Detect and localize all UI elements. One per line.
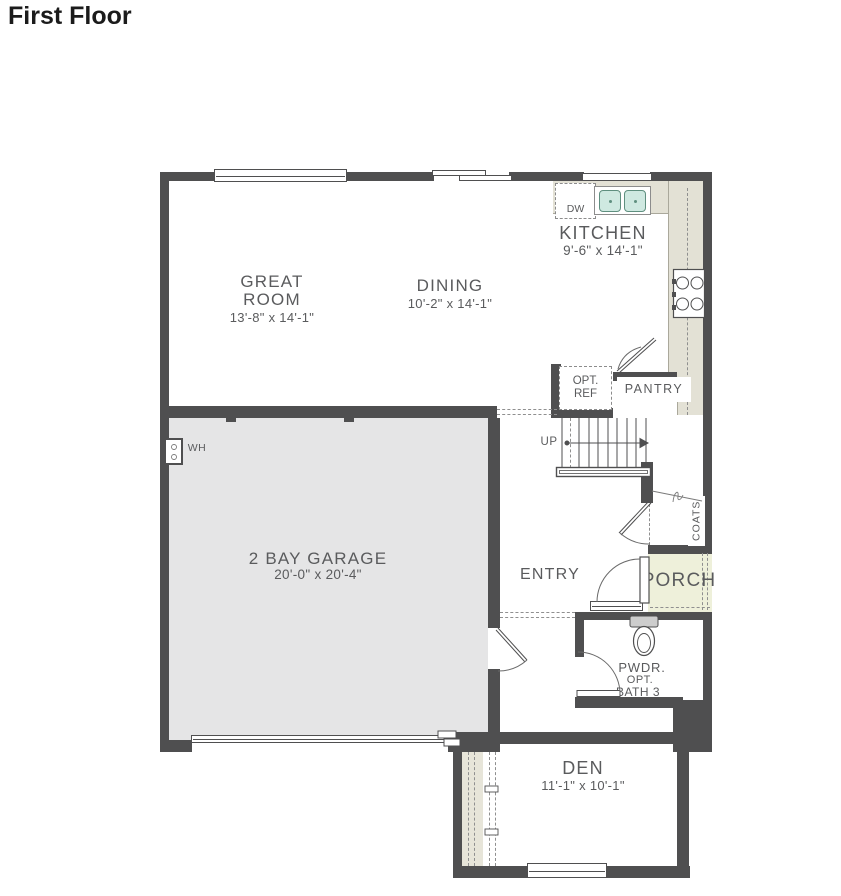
wall	[703, 612, 712, 708]
kitchen-sink	[594, 186, 651, 215]
wall	[509, 172, 584, 181]
powder-room-label: PWDR.	[618, 660, 665, 675]
wall	[575, 612, 584, 657]
sliding-door-panel	[459, 175, 512, 181]
porch-label: PORCH	[642, 570, 717, 592]
dashed-line	[500, 612, 575, 613]
pantry-door-swing	[618, 347, 641, 369]
coats-opening-dashed	[649, 504, 650, 545]
wall	[160, 740, 192, 752]
wall	[160, 406, 497, 418]
dashed-line	[500, 617, 575, 618]
front-door-threshold	[590, 601, 643, 611]
strip-jog	[485, 829, 498, 835]
dishwasher-label: DW	[567, 203, 585, 216]
wall	[453, 866, 528, 878]
garage-label: 2 BAY GARAGE	[249, 549, 388, 569]
kitchen-counter-right	[668, 181, 704, 378]
bath-door-leaf	[577, 691, 620, 697]
dishwasher-box: DW	[555, 183, 596, 219]
entry-label: ENTRY	[520, 566, 580, 584]
optional-refrigerator-box: OPT. REF	[559, 366, 612, 410]
kitchen-dimensions: 9'-6" x 14'-1"	[563, 243, 643, 258]
dashed-line	[497, 414, 557, 415]
great-room-label: ROOM	[243, 290, 301, 310]
sink-basin	[599, 190, 621, 212]
dining-label: DINING	[417, 276, 484, 296]
wall	[346, 172, 434, 181]
stair-handrail-inner	[560, 471, 648, 474]
front-door-swing	[597, 559, 640, 602]
garage-door-leaf	[498, 628, 527, 660]
pantry-door-leaf	[617, 338, 654, 371]
stair-dashed-line	[570, 418, 571, 468]
garage-dimensions: 20'-0" x 20'-4"	[274, 567, 362, 582]
water-heater-box	[164, 438, 183, 465]
water-heater-label: WH	[188, 442, 207, 454]
bath-door-swing	[578, 652, 620, 694]
powder-room-label: BATH 3	[616, 685, 660, 699]
wall	[448, 732, 500, 752]
wall	[453, 752, 462, 878]
coats-door-leaf	[621, 503, 651, 535]
wall	[488, 418, 500, 628]
coats-door-swing	[620, 533, 650, 544]
dashed-line	[497, 409, 557, 410]
garage-door-panel	[191, 735, 448, 743]
stairs-up-label: UP	[541, 436, 558, 448]
dining-dimensions: 10'-2" x 14'-1"	[408, 296, 492, 311]
great-room-dimensions: 13'-8" x 14'-1"	[230, 310, 314, 325]
dashed-line	[474, 752, 475, 866]
kitchen-label: KITCHEN	[559, 223, 646, 244]
dashed-line	[468, 752, 469, 866]
pantry-label: PANTRY	[625, 382, 684, 396]
coats-closet-label: COATS	[688, 496, 705, 546]
strip-jog	[485, 786, 498, 792]
up-arrow-head	[640, 439, 648, 448]
garage-door-leaf	[496, 630, 525, 662]
up-arrow-dot	[565, 441, 569, 445]
wall	[575, 612, 712, 620]
wall	[677, 744, 689, 878]
pantry-door-leaf	[619, 340, 656, 373]
page-title: First Floor	[8, 2, 132, 31]
floor-plan-page: First Floor	[0, 0, 841, 896]
great-room-label: GREAT	[240, 272, 303, 292]
garage-door-swing	[498, 660, 527, 671]
sink-basin	[624, 190, 646, 212]
wall	[500, 732, 689, 744]
stair-handrail	[557, 468, 651, 477]
dashed-line	[495, 752, 496, 866]
great-room-window	[214, 169, 347, 182]
porch-edge-dashed	[650, 607, 710, 608]
opt-ref-label-1: OPT.	[573, 375, 599, 388]
coats-door-leaf	[619, 501, 649, 533]
opt-ref-label-2: REF	[574, 388, 597, 401]
toilet-bowl-inner	[638, 634, 651, 653]
toilet-bowl	[634, 627, 655, 656]
den-window	[527, 863, 607, 878]
den-side-strip	[462, 752, 483, 866]
dashed-line	[489, 752, 490, 866]
den-dimensions: 11'-1" x 10'-1"	[541, 778, 625, 793]
coats-label: COATS	[691, 501, 703, 541]
kitchen-window	[583, 173, 651, 181]
coats-rod-hook	[673, 492, 683, 502]
pantry-label-box: PANTRY	[617, 377, 691, 402]
den-label: DEN	[562, 758, 604, 779]
stair-newel-wall	[641, 462, 653, 503]
